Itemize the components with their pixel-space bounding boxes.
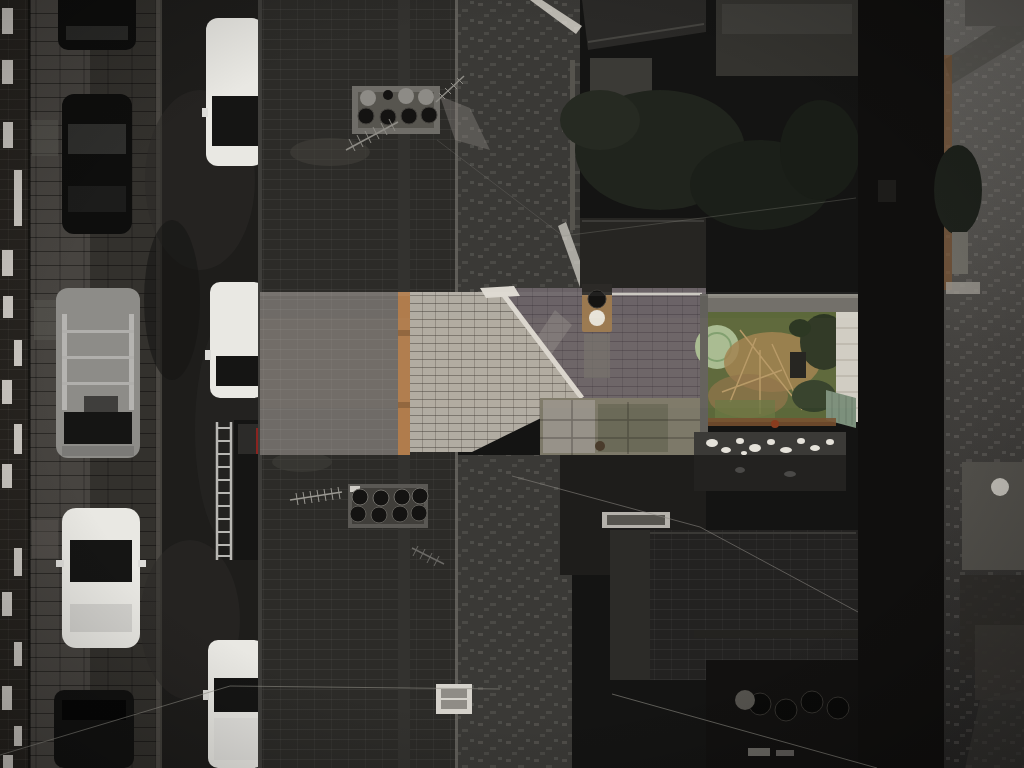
aerial-photo-canvas <box>0 0 1024 768</box>
aerial-photo <box>0 0 1024 768</box>
vignette <box>0 0 1024 768</box>
